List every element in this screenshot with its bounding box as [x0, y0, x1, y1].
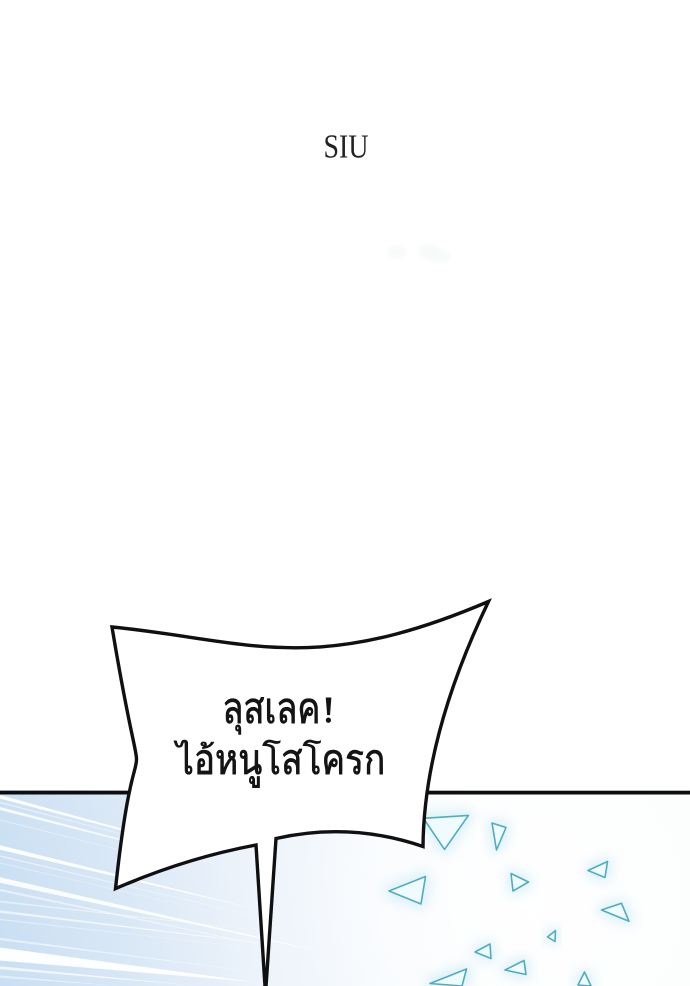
svg-text:SIU: SIU — [324, 127, 369, 165]
